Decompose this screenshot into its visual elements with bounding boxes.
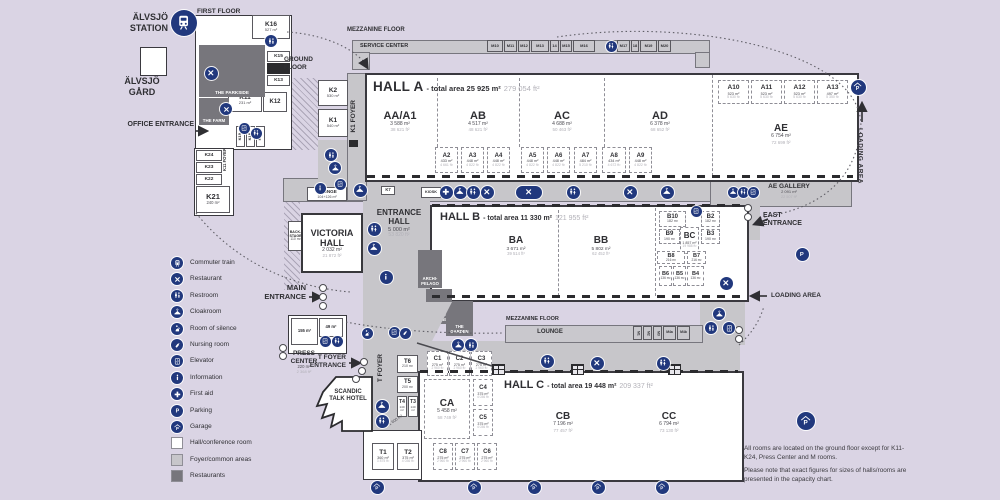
room-name: M3 <box>656 331 660 336</box>
room-b5: B5136 m² <box>673 266 686 286</box>
press-center-label: PRESS CENTER 220 m² 2 368 ft² <box>280 350 328 375</box>
room-area-m2: 527 m² <box>265 28 277 32</box>
room-of-silence-icon <box>362 328 373 339</box>
station-label: ÄLVSJÖSTATION <box>108 12 168 33</box>
room-m1: M1 <box>633 326 642 340</box>
room-name: C8 <box>439 449 447 456</box>
elevator-icon <box>171 355 183 367</box>
cloakroom-icon <box>376 400 389 413</box>
room-m12: M12 <box>518 40 530 52</box>
room-name: A9 <box>637 153 645 160</box>
room-area-ft2: 4 036 ft² <box>477 426 489 430</box>
room-aeg: AE GALLERY2 091 m²22 507 ft² <box>757 179 821 203</box>
room-ba: BA3 671 m²39 514 ft² <box>491 232 541 260</box>
first-aid-icon <box>440 186 453 199</box>
room-k7: K7 <box>381 186 395 195</box>
hall-a-separator <box>604 78 605 147</box>
office-entrance-label: OFFICE ENTRANCE <box>124 121 194 129</box>
restaurant-garden: THE GARDEN <box>446 301 473 336</box>
legend-item-label: Restaurant <box>190 275 222 282</box>
room-name: K7 <box>385 188 390 193</box>
elevator-icon <box>723 322 735 334</box>
elevator-icon <box>691 206 702 217</box>
elevator-icon <box>239 123 250 134</box>
room-m4a: M4a <box>663 326 676 340</box>
room-area-ft2: 4 822 ft² <box>634 164 647 168</box>
footnote-1: All rooms are located on the ground floo… <box>744 445 916 463</box>
room-of-silence-icon <box>171 323 183 335</box>
k11-foyer-label: K11 FOYER <box>223 148 228 171</box>
room-area-m2: 231 m² <box>239 101 251 105</box>
room-name: K22 <box>205 177 214 182</box>
legend-item-label: Garage <box>190 423 212 430</box>
room-name: M13 <box>536 44 544 48</box>
restaurant-icon <box>171 273 183 285</box>
room-victoria: VICTORIA HALL2 032 m²21 872 ft² <box>301 213 363 273</box>
room-area-m2: 530 m² <box>327 94 339 98</box>
room-name: VICTORIA HALL <box>303 228 361 248</box>
room-name: K24 <box>205 153 214 158</box>
first-floor-label: FIRST FLOOR <box>197 8 240 16</box>
room-area-m2: 216 m² <box>666 259 676 263</box>
room-name: A11 <box>761 84 773 91</box>
room-name: M4a <box>666 331 673 335</box>
garage-icon <box>371 481 384 494</box>
room-area-m2: 136 m² <box>691 277 701 281</box>
restroom-icon <box>606 41 617 52</box>
room-bc: BC1 857 m²19 988 ft² <box>680 227 699 254</box>
room-k24: K24 <box>196 150 222 161</box>
room-b7: B7216 m² <box>687 251 706 264</box>
gate-icon <box>668 364 681 375</box>
restroom-icon <box>332 336 343 347</box>
room-name: M1 <box>636 331 640 336</box>
commuter-train-icon <box>171 257 183 269</box>
room-name: K19 <box>238 133 242 140</box>
restaurant-icon <box>516 186 542 199</box>
room-name: A13 <box>827 84 839 91</box>
restaurant-name: THE FARM <box>203 118 225 123</box>
room-m17: M17 <box>617 40 630 52</box>
room-name: M11 <box>507 44 515 48</box>
room-name: AC <box>554 110 570 122</box>
garage-icon <box>656 481 669 494</box>
room-name: 155 m² <box>298 329 311 334</box>
room-ab: AB4 517 m²48 621 ft² <box>452 104 504 138</box>
legend-item-label: Hall/conference room <box>190 439 252 446</box>
elevator-icon <box>320 336 331 347</box>
room-area-m2: 136 m² <box>675 277 685 281</box>
room-area-ft2: 4 822 ft² <box>466 164 479 168</box>
room-name: A3 <box>469 153 477 160</box>
restaurant-name: THE PARKSIDE <box>215 90 249 96</box>
t-foyer-label: T FOYER <box>377 354 385 382</box>
commuter-train-icon <box>171 10 197 36</box>
room-area-ft2: 4 036 ft² <box>477 396 489 400</box>
room-k1: K1540 m² <box>318 109 348 137</box>
room-area-ft2: 50 463 ft² <box>552 127 571 132</box>
room-m4b: M4b <box>677 326 690 340</box>
gate-icon <box>492 364 505 375</box>
room-name: C4 <box>479 385 487 392</box>
room-name: M15 <box>562 44 570 48</box>
room-area-m2: 110 m² <box>290 238 300 242</box>
room-name: A2 <box>443 153 451 160</box>
room-a2: A2433 m²4 661 ft² <box>435 147 458 173</box>
room-name: C6 <box>483 449 491 456</box>
elevator-icon <box>335 179 346 190</box>
room-area-ft2: 4 672 ft² <box>608 164 621 168</box>
hall-b-doors-bottom <box>432 295 743 298</box>
room-ac: AC4 688 m²50 463 ft² <box>536 104 588 138</box>
room-a7: A7484 m²5 210 ft² <box>574 147 597 173</box>
room-b6: B6136 m² <box>659 266 672 286</box>
nursing-room-icon <box>171 339 183 351</box>
room-area-ft2: 4 822 ft² <box>492 164 505 168</box>
room-area-m2: 140 m² <box>409 406 417 413</box>
room-bb: BB5 802 m²62 452 ft² <box>576 232 626 260</box>
room-a6: A6448 m²4 822 ft² <box>547 147 570 173</box>
room-k21: K21240 m² <box>196 186 230 213</box>
main-entrance-label: MAIN ENTRANCE <box>249 284 306 302</box>
cloakroom-icon <box>368 242 381 255</box>
room-area-ft2: 62 452 ft² <box>592 252 610 257</box>
restroom-icon <box>467 186 480 199</box>
information-icon <box>171 372 183 384</box>
gard-label: ÄLVSJÖGÅRD <box>116 76 168 97</box>
room-a9: A9448 m²4 822 ft² <box>629 147 652 173</box>
room-pc2: 49 m² <box>319 318 343 337</box>
k1-foyer-strip <box>347 73 367 201</box>
restaurant-name: THE GARDEN <box>446 324 473 334</box>
room-t6: T6210 m² <box>397 355 418 373</box>
room-18: 18 <box>631 40 639 52</box>
elevator-icon <box>389 327 400 338</box>
restaurant-name: ARCHI-PELAGO <box>418 276 442 286</box>
k1-foyer-label: K1 FOYER <box>350 100 358 133</box>
garage-icon <box>171 421 183 433</box>
room-m10: M10 <box>487 40 503 52</box>
restaurant-icon <box>205 67 218 80</box>
nursing-room-icon <box>400 328 411 339</box>
room-area-m2: 200 m² <box>402 386 413 390</box>
room-name: K23 <box>205 165 214 170</box>
room-area-ft2: 4 822 ft² <box>552 164 565 168</box>
room-name: A7 <box>582 153 590 160</box>
room-name: A12 <box>794 84 806 91</box>
room-m20: M20 <box>658 40 671 52</box>
hall-b-separator <box>655 208 656 296</box>
legend-item-label: Commuter train <box>190 259 235 266</box>
elevator-icon <box>748 187 759 198</box>
legend-item-label: Information <box>190 374 223 381</box>
room-name: M4b <box>680 331 687 335</box>
loading-area-right-label: LOADING AREA <box>856 128 864 184</box>
room-area-ft2: 58 749 ft² <box>437 415 456 420</box>
room-14: 14 <box>550 40 559 52</box>
room-name: C1 <box>434 356 442 363</box>
legend-item-label: Elevator <box>190 357 214 364</box>
room-name: A6 <box>555 153 563 160</box>
legend-item-label: Restaurants <box>190 472 225 479</box>
restroom-icon <box>368 223 381 236</box>
legend-item-label: Cloakroom <box>190 308 221 315</box>
parking-icon <box>796 248 809 261</box>
garage-icon <box>528 481 541 494</box>
room-a5: A5448 m²4 822 ft² <box>521 147 544 173</box>
legend-swatch-swD <box>171 470 183 482</box>
restroom-icon <box>171 290 183 302</box>
room-area-ft2: 77 457 ft² <box>553 428 572 433</box>
room-t5: T5200 m² <box>397 376 418 393</box>
room-name: T1 <box>379 449 387 456</box>
room-m19: M19 <box>640 40 657 52</box>
room-name: 18 <box>633 44 637 48</box>
legend-item-label: Room of silence <box>190 325 237 332</box>
room-pc1: 155 m² <box>291 318 318 345</box>
room-t3: T3140 m² <box>408 396 418 417</box>
garage-icon <box>851 80 866 95</box>
room-name: C2 <box>456 356 464 363</box>
alvsjo-gard-box <box>140 47 167 76</box>
restroom-icon <box>738 187 749 198</box>
room-name: M10 <box>491 44 499 48</box>
room-b4: B4136 m² <box>687 266 704 286</box>
room-name: K12 <box>269 99 280 106</box>
room-area-ft2: 5 350 ft² <box>826 96 839 100</box>
room-ca: CA5 458 m²58 749 ft² <box>424 379 470 439</box>
room-cc: CC6 794 m²73 130 ft² <box>643 406 695 438</box>
room-area-ft2: 5 630 ft² <box>793 96 806 100</box>
restroom-icon <box>567 186 580 199</box>
room-name: K15 <box>274 54 283 59</box>
room-m13: M13 <box>531 40 549 52</box>
room-m15: M15 <box>560 40 572 52</box>
room-a11: A11523 m²5 630 ft² <box>751 80 782 104</box>
stairs <box>349 140 358 147</box>
room-name: AA/A1 <box>383 110 416 122</box>
room-ad: AD6 378 m²68 652 ft² <box>634 104 686 138</box>
legend-item-label: First aid <box>190 390 213 397</box>
cloakroom-icon <box>454 186 467 199</box>
restaurant-icon <box>720 277 733 290</box>
room-b9: B9190 m² <box>659 229 680 244</box>
room-area-ft2: 4 822 ft² <box>526 164 539 168</box>
room-ae: AE6 754 m²72 699 ft² <box>755 116 807 152</box>
legend-item-label: Restroom <box>190 292 218 299</box>
room-k12: K12 <box>263 92 287 112</box>
room-c8: C8275 m²2 960 ft² <box>433 443 453 470</box>
room-area-m2: 190 m² <box>705 238 716 242</box>
room-area-ft2: 2 960 ft² <box>459 460 471 464</box>
room-area-m2: 190 m² <box>664 238 675 242</box>
room-m3: M3 <box>653 326 662 340</box>
room-area-ft2: 4 036 ft² <box>402 460 414 464</box>
legend-item-label: Parking <box>190 407 212 414</box>
mezzanine-corner-right <box>695 52 710 68</box>
room-area-ft2: 73 130 ft² <box>659 428 678 433</box>
room-c5: C5375 m²4 036 ft² <box>473 409 493 436</box>
room-name: A8 <box>610 153 618 160</box>
hall-a-separator <box>712 75 713 176</box>
room-name: A5 <box>529 153 537 160</box>
room-a10: A10523 m²5 630 ft² <box>718 80 749 104</box>
room-area-m2: 104+126 m² <box>317 195 336 199</box>
room-name: C3 <box>478 356 486 363</box>
room-area-ft2: 22 507 ft² <box>781 195 797 199</box>
room-m2: M2 <box>643 326 652 340</box>
restroom-icon <box>376 415 389 428</box>
room-area-m2: 136 m² <box>661 277 671 281</box>
legend-swatch-swW <box>171 437 183 449</box>
room-name: M17 <box>620 44 628 48</box>
room-area-ft2: 2 960 ft² <box>481 460 493 464</box>
room-area-ft2: 2 960 ft² <box>437 460 449 464</box>
room-t2: T2375 m²4 036 ft² <box>397 443 419 470</box>
hatch-area <box>289 78 318 150</box>
room-area-ft2: 68 652 ft² <box>650 127 669 132</box>
gate-icon <box>571 364 584 375</box>
cloakroom-icon <box>329 162 341 174</box>
cloakroom-icon <box>713 308 725 320</box>
room-area-m2: 140 m² <box>398 406 406 413</box>
room-m16: M16 <box>573 40 595 52</box>
legend-swatch-swF <box>171 454 183 466</box>
garage-icon <box>797 412 815 430</box>
east-entrance-label: EAST ENTRANCE <box>763 212 807 229</box>
scandic-hotel-label: SCANDIC TALK HOTEL <box>327 389 369 403</box>
ground-floor-label: GROUND FLOOR <box>284 56 324 71</box>
room-area-ft2: 5 630 ft² <box>760 96 773 100</box>
room-c4: C4375 m²4 036 ft² <box>473 379 493 406</box>
room-a8: A8434 m²4 672 ft² <box>602 147 626 173</box>
legend-item-label: Foyer/common areas <box>190 456 251 463</box>
restaurant-icon <box>591 357 604 370</box>
room-name: BC <box>684 232 696 241</box>
restroom-icon <box>325 149 337 161</box>
room-a3: A3448 m²4 822 ft² <box>461 147 484 173</box>
restroom-icon <box>265 35 277 47</box>
room-area-m2: 240 m² <box>206 201 219 206</box>
room-b8: B8216 m² <box>657 251 685 264</box>
room-area-ft2: 48 621 ft² <box>468 127 487 132</box>
room-area-ft2: 39 514 ft² <box>507 252 525 257</box>
room-name: BB <box>594 235 608 246</box>
kiosk-label: KIOSK <box>421 187 441 198</box>
room-entrance: ENTRANCE HALL5 000 m²53 820 ft² <box>371 205 427 243</box>
garage-icon <box>468 481 481 494</box>
restroom-icon <box>251 128 262 139</box>
hall-a-title: HALL A- total area 25 925 m²279 054 ft² <box>373 79 540 94</box>
room-name: AB <box>470 110 486 122</box>
information-icon <box>380 271 393 284</box>
room-area-ft2: 21 872 ft² <box>322 253 341 258</box>
room-b10: B10182 m² <box>659 211 686 227</box>
room-area-m2: 182 m² <box>705 220 716 224</box>
cloakroom-icon <box>171 306 183 318</box>
cloakroom-icon <box>452 339 464 351</box>
room-b3: B3190 m² <box>701 229 720 244</box>
room-area-ft2: 4 661 ft² <box>440 164 453 168</box>
room-b2: B2182 m² <box>701 211 720 227</box>
room-name: M16 <box>580 44 588 48</box>
room-name: BA <box>509 235 523 246</box>
information-icon <box>315 183 326 194</box>
loading-area-mid-label: LOADING AREA <box>771 292 821 300</box>
first-aid-icon <box>171 388 183 400</box>
room-name: K13 <box>274 78 283 83</box>
room-name: M19 <box>645 44 653 48</box>
restaurant-icon <box>220 103 232 115</box>
cloakroom-icon <box>661 186 674 199</box>
room-area-m2: 210 m² <box>402 365 413 369</box>
cloakroom-icon <box>354 184 367 197</box>
floor-plan: ÄLVSJÖSTATION ÄLVSJÖGÅRD FIRST FLOOR GRO… <box>0 0 1000 500</box>
room-name: M2 <box>646 331 650 336</box>
service-center-label: SERVICE CENTER <box>360 43 408 49</box>
legend-item-label: Nursing room <box>190 341 229 348</box>
room-name: C5 <box>479 415 487 422</box>
room-c7: C7275 m²2 960 ft² <box>455 443 475 470</box>
room-name: A4 <box>495 153 503 160</box>
room-name: T2 <box>404 449 412 456</box>
room-area-ft2: 53 820 ft² <box>388 233 409 239</box>
hall-c-title: HALL C- total area 19 448 m²209 337 ft² <box>504 379 653 391</box>
room-a4: A4448 m²4 822 ft² <box>487 147 510 173</box>
room-name: A10 <box>728 84 740 91</box>
room-k22: K22 <box>196 174 222 185</box>
room-area-ft2: 19 988 ft² <box>683 245 697 249</box>
mezzanine-mid-label: MEZZANINE FLOOR <box>506 316 559 322</box>
room-area-ft2: 5 630 ft² <box>727 96 740 100</box>
lounge-mid-label: LOUNGE <box>510 325 590 341</box>
restroom-icon <box>541 355 554 368</box>
room-m11: M11 <box>504 40 517 52</box>
restaurant-icon <box>481 186 494 199</box>
room-name: 49 m² <box>326 325 337 330</box>
room-name: M12 <box>520 44 528 48</box>
cloakroom-icon <box>728 187 739 198</box>
hall-b-title: HALL B- total area 11 330 m²121 955 ft² <box>440 211 588 223</box>
room-cb: CB7 196 m²77 457 ft² <box>537 406 589 438</box>
room-area-m2: 540 m² <box>327 124 339 128</box>
mezzanine-top-label: MEZZANINE FLOOR <box>347 27 405 34</box>
restaurant-icon <box>624 186 637 199</box>
room-name: M20 <box>661 44 669 48</box>
restroom-icon <box>657 357 670 370</box>
room-area-ft2: 5 210 ft² <box>579 164 592 168</box>
restaurant-archipelago: ARCHI-PELAGO <box>418 250 442 288</box>
room-name: AD <box>652 110 668 122</box>
room-area-ft2: 72 699 ft² <box>771 140 790 145</box>
hall-a-doors <box>367 175 853 178</box>
room-k2: K2530 m² <box>318 80 348 106</box>
room-a13: A13497 m²5 350 ft² <box>817 80 848 104</box>
room-area-ft2: 3 875 ft² <box>377 460 389 464</box>
garage-icon <box>592 481 605 494</box>
room-name: 14 <box>552 44 556 48</box>
room-area-m2: 182 m² <box>667 220 678 224</box>
room-a12: A12523 m²5 630 ft² <box>784 80 815 104</box>
mezzanine-corner-left <box>352 52 370 70</box>
restroom-icon <box>705 322 717 334</box>
room-k13: K13 <box>267 75 290 86</box>
room-aa: AA/A13 588 m²38 621 ft² <box>374 104 426 138</box>
room-area-m2: 216 m² <box>692 259 702 263</box>
room-name: C7 <box>461 449 469 456</box>
footnote-2: Please note that exact figures for sizes… <box>744 467 916 485</box>
restroom-icon <box>465 339 477 351</box>
